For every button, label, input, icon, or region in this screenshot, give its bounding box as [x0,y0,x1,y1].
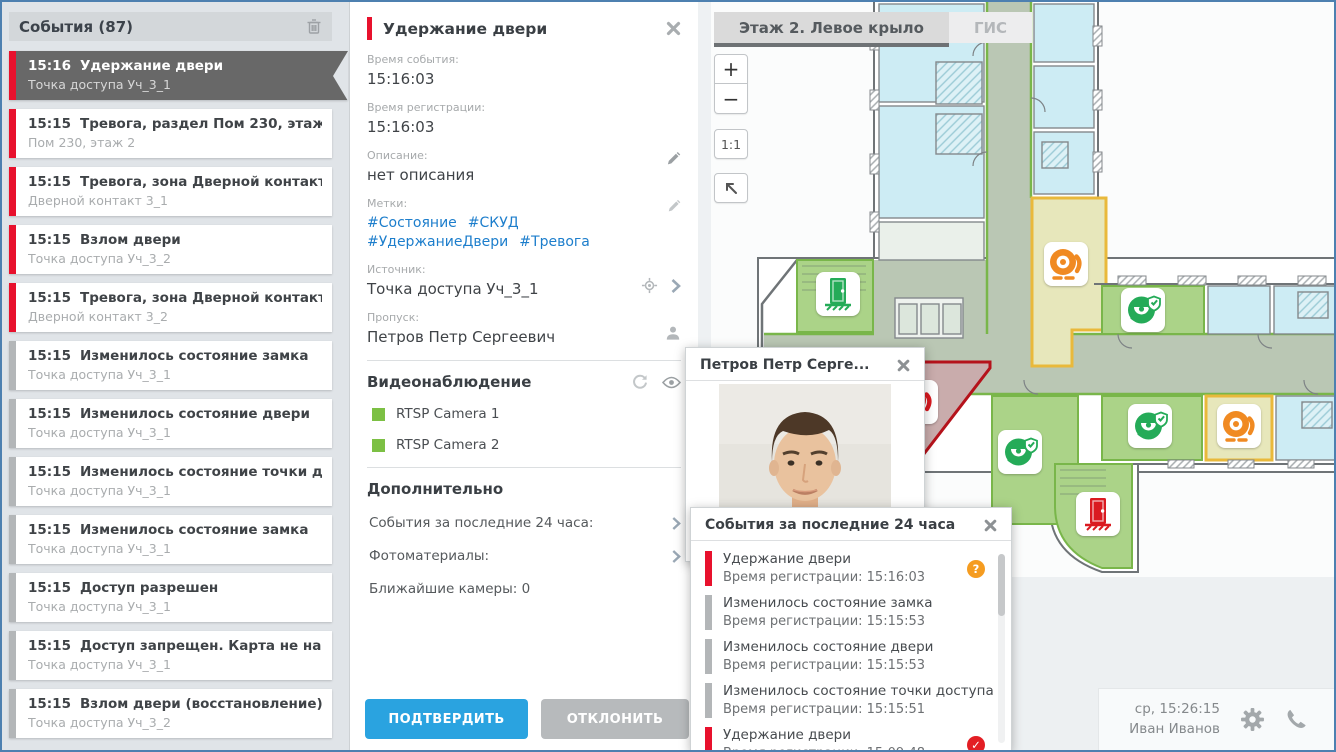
event-source: Точка доступа Уч_3_1 [28,77,223,92]
camera-status-icon [372,439,385,452]
extra-section-header: Дополнительно [367,480,681,498]
popup-event-title: Удержание двери [723,551,925,567]
popup-event-item[interactable]: Удержание двери Время регистрации: 15:09… [705,727,985,752]
event-source: Дверной контакт 3_1 [28,193,322,208]
severity-stripe [9,515,16,564]
event-title: Тревога, зона Дверной контакт ... [80,290,322,306]
severity-stripe [9,283,16,332]
popup-event-item[interactable]: Удержание двери Время регистрации: 15:16… [705,551,985,586]
event-time: 15:15 [28,522,71,538]
map-camera-guard-icon[interactable] [997,429,1043,475]
chevron-right-icon [671,516,681,531]
event-source: Точка доступа Уч_3_2 [28,251,181,266]
pass-holder-popup-title: Петров Петр Серге... [700,357,869,373]
settings-gear-icon[interactable] [1240,707,1265,732]
extra-row-label: Фотоматериалы: [369,548,489,564]
extra-title: Дополнительно [367,480,503,498]
event-list-item[interactable]: 15:15Доступ разрешен Точка доступа Уч_3_… [9,573,332,622]
zoom-in-button[interactable]: + [714,54,748,84]
camera-row[interactable]: RTSP Camera 1 [372,406,681,422]
severity-stripe [705,683,712,718]
popup-event-item[interactable]: Изменилось состояние двери Время регистр… [705,639,985,674]
event-source: Точка доступа Уч_3_1 [28,541,308,556]
extra-list: События за последние 24 часа: Фотоматери… [367,515,681,564]
pass-value: Петров Петр Сергеевич [367,328,681,346]
event-time: 15:15 [28,580,71,596]
event-time: 15:15 [28,232,71,248]
person-icon[interactable] [665,325,681,341]
eye-icon[interactable] [662,376,681,389]
last-24h-event-list: Удержание двери Время регистрации: 15:16… [691,541,1011,752]
popup-event-reg-time: Время регистрации: 15:09:48 [723,746,925,752]
close-icon[interactable] [666,21,681,36]
event-time-field: Время события: 15:16:03 [367,53,681,88]
decline-button[interactable]: ОТКЛОНИТЬ [541,699,689,739]
last-24h-events-popup: События за последние 24 часа Удержание д… [690,507,1012,752]
description-label: Описание: [367,149,681,162]
event-time: 15:15 [28,406,71,422]
popup-event-reg-time: Время регистрации: 15:15:53 [723,658,933,673]
event-time: 15:15 [28,638,71,654]
event-time: 15:15 [28,290,71,306]
popup-event-reg-time: Время регистрации: 15:16:03 [723,570,925,585]
event-source: Точка доступа Уч_3_1 [28,599,218,614]
map-alarm-warning-icon[interactable] [1216,403,1262,449]
event-list-item[interactable]: 15:15Взлом двери Точка доступа Уч_3_2 [9,225,332,274]
event-title: Взлом двери (восстановление) [80,696,322,712]
popup-event-title: Изменилось состояние двери [723,639,933,655]
zoom-1-1-button[interactable]: 1:1 [714,129,748,159]
severity-stripe [9,457,16,506]
chevron-right-icon [671,549,681,564]
event-source: Точка доступа Уч_3_1 [28,425,310,440]
popup-event-item[interactable]: Изменилось состояние замка Время регистр… [705,595,985,630]
event-detail-panel: Удержание двери Время события: 15:16:03 … [349,2,698,750]
map-camera-guard-icon[interactable] [1120,287,1166,333]
event-tag[interactable]: #СКУД [468,215,519,231]
event-time-value: 15:16:03 [367,70,681,88]
map-zoom-controls: + − 1:1 [714,54,748,203]
event-title: Доступ запрещен. Карта не най... [80,638,322,654]
severity-stripe [9,225,16,274]
source-label: Источник: [367,263,681,276]
map-alarm-warning-icon[interactable] [1043,241,1089,287]
tags-field: Метки: #Состояние #СКУД #УдержаниеДвери … [367,197,681,250]
pass-label: Пропуск: [367,311,681,324]
camera-list: RTSP Camera 1 RTSP Camera 2 [367,406,681,453]
refresh-icon[interactable] [632,374,648,390]
event-title: Изменилось состояние замка [80,522,308,538]
severity-stripe [9,399,16,448]
detail-title: Удержание двери [383,20,547,38]
popup-event-title: Изменилось состояние точки доступа [723,683,994,699]
camera-name: RTSP Camera 1 [396,406,500,422]
event-tag[interactable]: #Состояние [367,215,457,231]
map-door-alarm-icon[interactable] [1075,491,1121,537]
event-title: Тревога, раздел Пом 230, этаж 2 [80,116,322,132]
tags-list: #Состояние #СКУД #УдержаниеДвери #Тревог… [367,215,667,250]
camera-row[interactable]: RTSP Camera 2 [372,437,681,453]
map-door-ok-icon[interactable] [815,271,861,317]
phone-icon[interactable] [1285,708,1308,731]
popup-event-reg-time: Время регистрации: 15:15:51 [723,702,994,717]
event-list-item[interactable]: 15:15Изменилось состояние двери Точка до… [9,399,332,448]
severity-stripe [705,639,712,674]
event-time: 15:15 [28,464,71,480]
tags-label: Метки: [367,197,681,210]
edit-tags-icon[interactable] [667,199,681,213]
event-status-badge: ✓ [967,736,985,752]
status-datetime: ср, 15:26:15 [1129,700,1220,720]
event-source: Точка доступа Уч_3_1 [28,657,322,672]
severity-stripe [9,341,16,390]
popup-event-item[interactable]: Изменилось состояние точки доступа Время… [705,683,985,718]
popup-scrollbar-thumb[interactable] [998,554,1005,616]
extra-row-label: События за последние 24 часа: [369,515,593,531]
events-sidebar-header: События (87) [9,12,332,41]
event-title: Изменилось состояние точки д... [80,464,322,480]
map-camera-guard-icon[interactable] [1127,403,1173,449]
severity-stripe [705,727,712,752]
event-source: Точка доступа Уч_3_2 [28,715,322,730]
event-time: 15:15 [28,174,71,190]
event-time-label: Время события: [367,53,681,66]
event-list-item[interactable]: 15:15Доступ запрещен. Карта не най... То… [9,631,332,680]
event-title: Взлом двери [80,232,181,248]
event-list: 15:16Удержание двери Точка доступа Уч_3_… [9,51,349,738]
reg-time-value: 15:16:03 [367,118,681,136]
pan-to-origin-button[interactable] [714,173,748,203]
alarm-severity-bar [367,17,372,40]
camera-status-icon [372,408,385,421]
severity-stripe [9,167,16,216]
event-list-item[interactable]: 15:15Изменилось состояние точки д... Точ… [9,457,332,506]
tab-gis[interactable]: ГИС [949,12,1032,43]
severity-stripe [705,595,712,630]
close-icon[interactable] [984,519,997,532]
reg-time-label: Время регистрации: [367,101,681,114]
close-icon[interactable] [897,359,910,372]
severity-stripe [9,631,16,680]
app-window: События (87) 15:16Удержание двери Точка … [0,0,1336,752]
event-tag[interactable]: #Тревога [519,234,590,250]
pass-field: Пропуск: Петров Петр Сергеевич [367,311,681,346]
last-24h-popup-title: События за последние 24 часа [705,517,955,533]
section-divider [367,360,681,361]
map-tabs: Этаж 2. Левое крыло ГИС [714,12,1032,43]
edit-description-icon[interactable] [666,151,681,166]
confirm-button[interactable]: ПОДТВЕРДИТЬ [365,699,528,739]
event-list-item[interactable]: 15:15Тревога, раздел Пом 230, этаж 2 Пом… [9,109,332,158]
event-list-item[interactable]: 15:15Изменилось состояние замка Точка до… [9,515,332,564]
description-value: нет описания [367,166,681,184]
event-source: Пом 230, этаж 2 [28,135,322,150]
source-value: Точка доступа Уч_3_1 [367,280,681,298]
event-time: 15:16 [28,58,71,74]
event-title: Тревога, зона Дверной контакт ... [80,174,322,190]
reg-time-field: Время регистрации: 15:16:03 [367,101,681,136]
severity-stripe [705,551,712,586]
open-source-chevron-icon[interactable] [670,278,681,294]
event-list-item[interactable]: 15:15Тревога, зона Дверной контакт ... Д… [9,283,332,332]
description-field: Описание: нет описания [367,149,681,184]
popup-event-title: Изменилось состояние замка [723,595,933,611]
event-list-item[interactable]: 15:16Удержание двери Точка доступа Уч_3_… [9,51,348,100]
severity-stripe [9,51,16,100]
event-list-item[interactable]: 15:15Изменилось состояние замка Точка до… [9,341,332,390]
clock-block: ср, 15:26:15 Иван Иванов [1129,700,1220,739]
popup-event-title: Удержание двери [723,727,925,743]
event-title: Изменилось состояние замка [80,348,308,364]
extra-row[interactable]: События за последние 24 часа: [367,515,681,531]
popup-event-reg-time: Время регистрации: 15:15:53 [723,614,933,629]
severity-stripe [9,689,16,738]
event-tag[interactable]: #УдержаниеДвери [367,234,508,250]
tab-floor-2-left-wing[interactable]: Этаж 2. Левое крыло [714,12,949,43]
camera-name: RTSP Camera 2 [396,437,500,453]
event-title: Доступ разрешен [80,580,218,596]
event-source: Дверной контакт 3_2 [28,309,322,324]
trash-icon[interactable] [306,18,322,35]
events-sidebar: События (87) 15:16Удержание двери Точка … [2,2,349,750]
event-title: Удержание двери [80,58,223,74]
severity-stripe [9,109,16,158]
event-list-item[interactable]: 15:15Взлом двери (восстановление) Точка … [9,689,332,738]
source-field: Источник: Точка доступа Уч_3_1 [367,263,681,298]
status-username: Иван Иванов [1129,720,1220,740]
video-title: Видеонаблюдение [367,373,531,391]
event-source: Точка доступа Уч_3_1 [28,367,308,382]
popup-scrollbar[interactable] [998,554,1005,743]
event-time: 15:15 [28,116,71,132]
section-divider [367,467,681,468]
extra-row[interactable]: Фотоматериалы: [367,548,681,564]
locate-on-map-icon[interactable] [641,277,658,294]
zoom-out-button[interactable]: − [714,84,748,114]
severity-stripe [9,573,16,622]
nearest-cameras-row: Ближайшие камеры: 0 [367,581,681,597]
event-status-badge: ? [967,560,985,578]
event-time: 15:15 [28,348,71,364]
event-title: Изменилось состояние двери [80,406,310,422]
video-section-header: Видеонаблюдение [367,373,681,391]
event-source: Точка доступа Уч_3_1 [28,483,322,498]
event-list-item[interactable]: 15:15Тревога, зона Дверной контакт ... Д… [9,167,332,216]
status-bar: ср, 15:26:15 Иван Иванов [1098,688,1334,750]
events-count-title: События (87) [19,18,133,36]
event-time: 15:15 [28,696,71,712]
